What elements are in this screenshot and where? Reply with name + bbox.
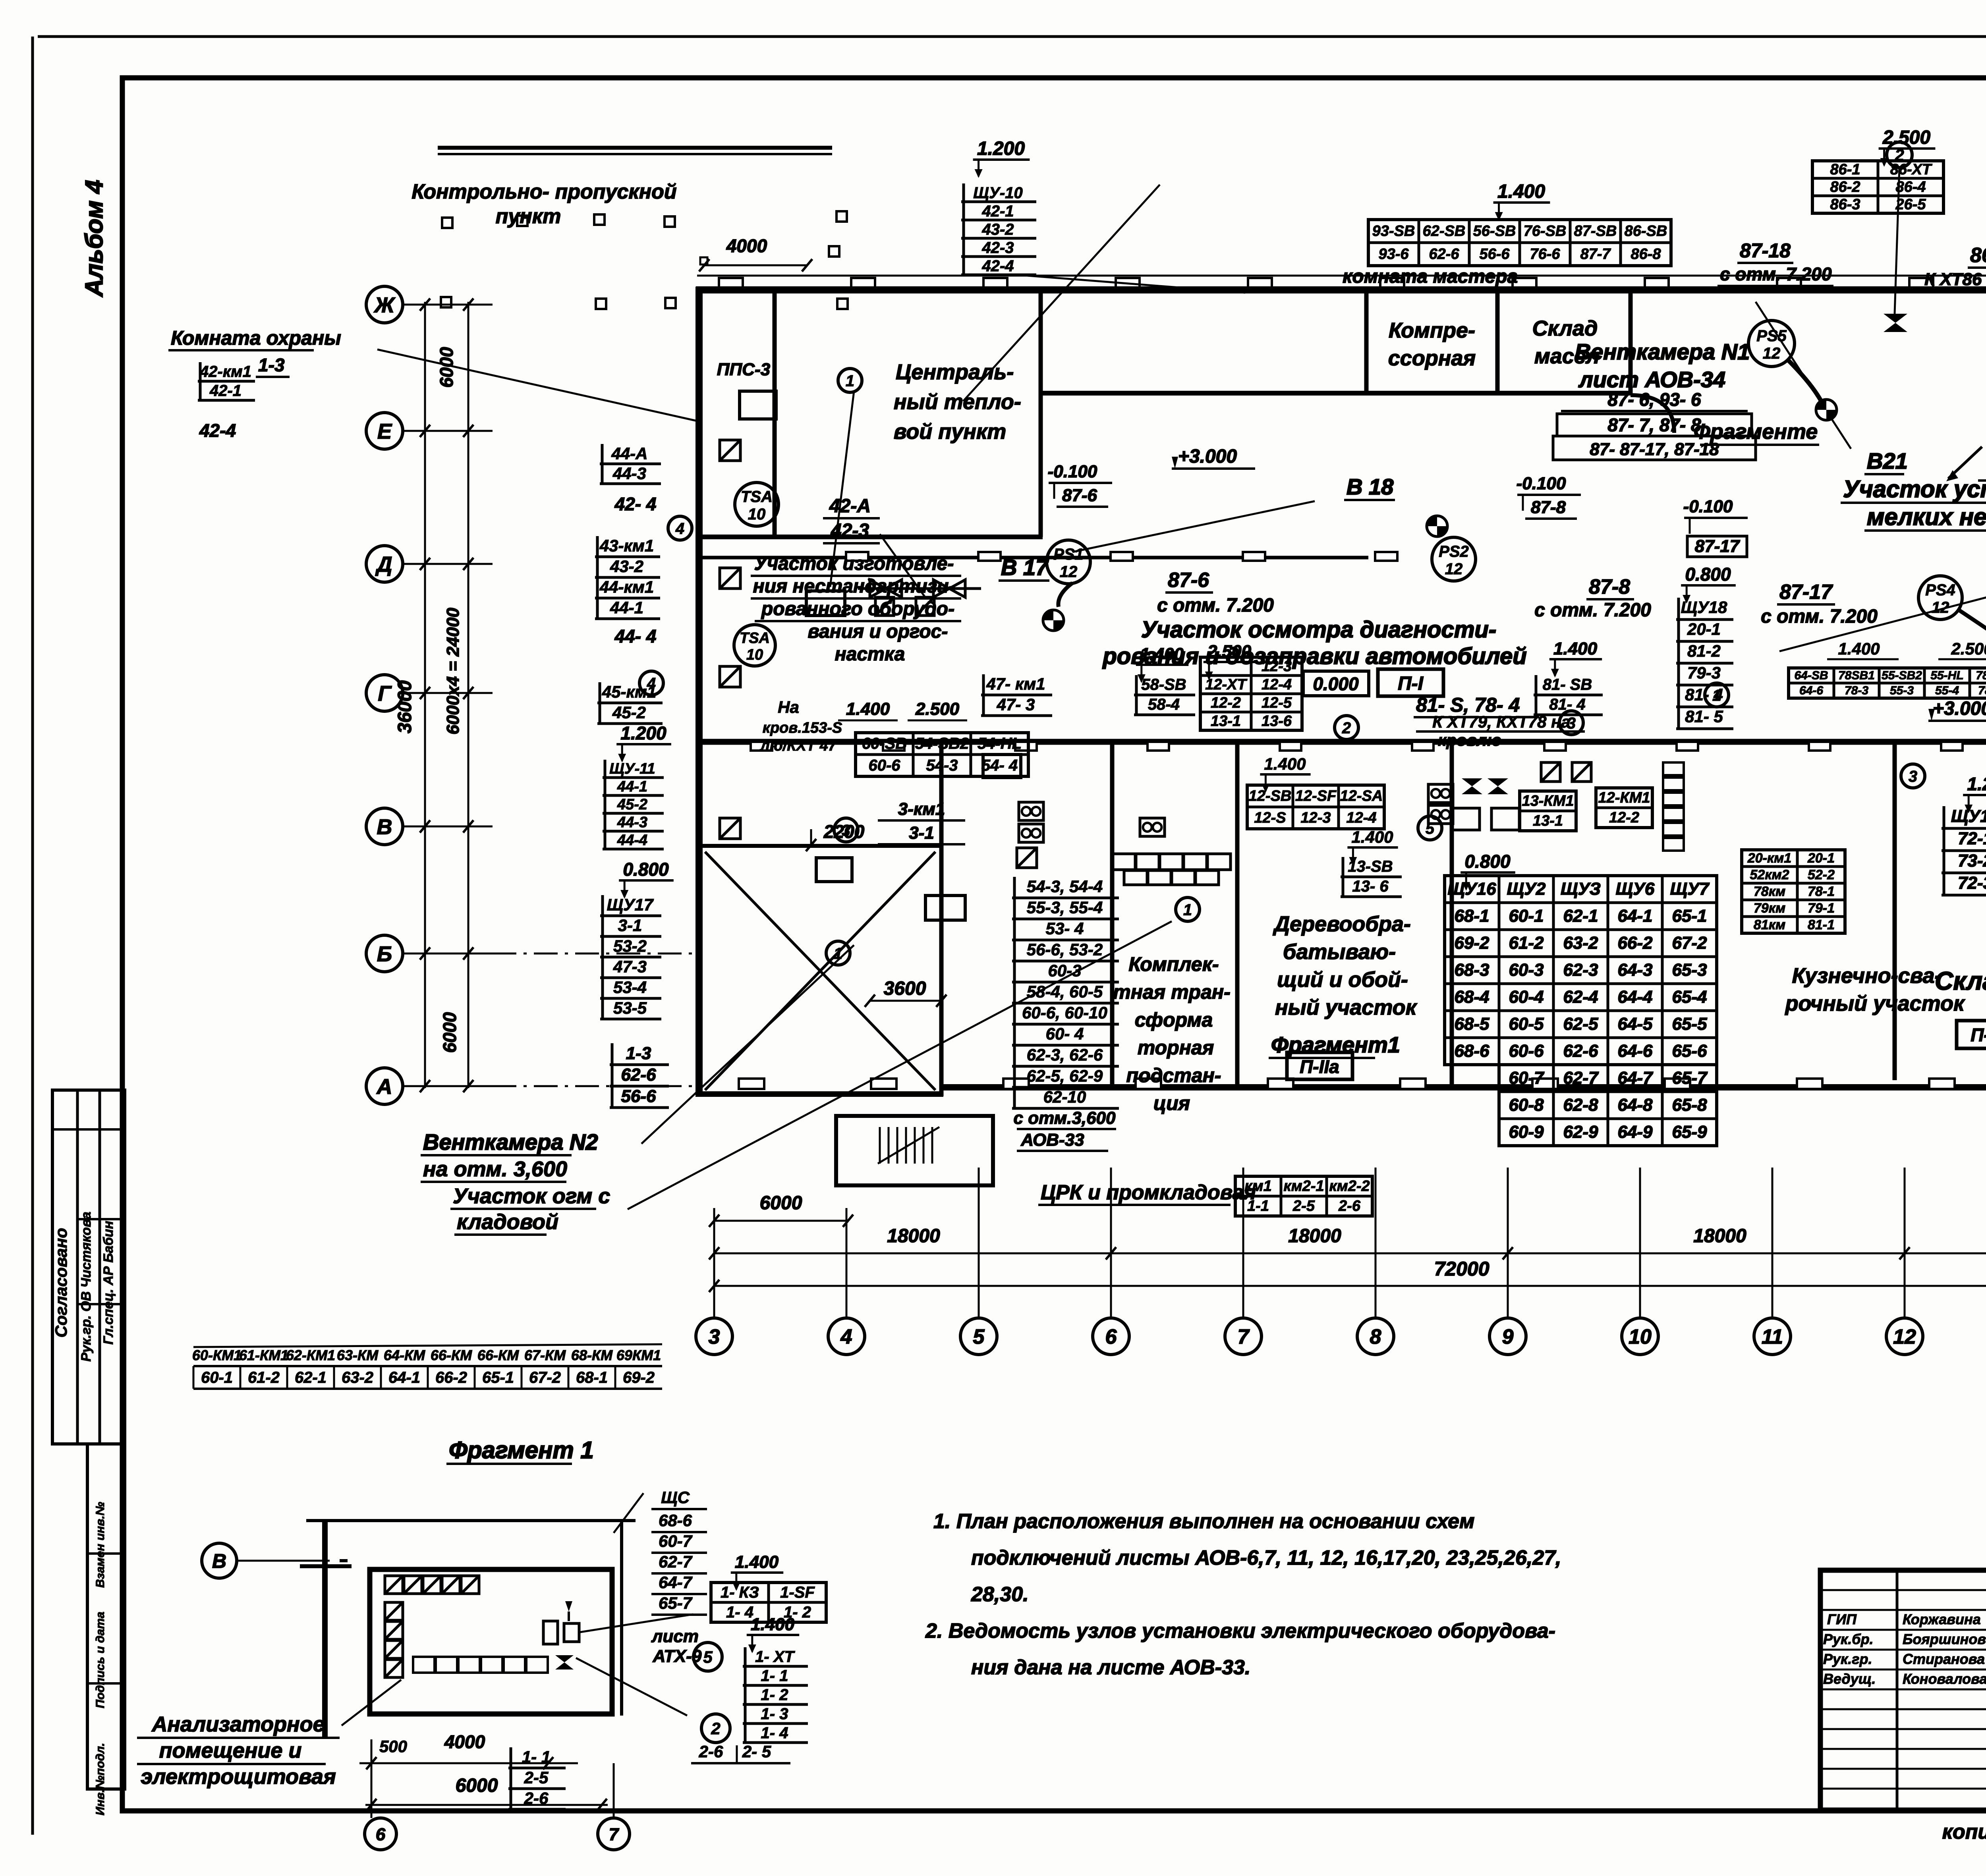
svg-text:72000: 72000 <box>1434 1258 1489 1280</box>
svg-text:-0.100: -0.100 <box>1048 462 1097 481</box>
svg-text:62-7: 62-7 <box>659 1552 693 1571</box>
svg-text:60- 4: 60- 4 <box>1046 1024 1084 1043</box>
svg-text:87-7: 87-7 <box>1580 246 1611 262</box>
svg-text:батываю-: батываю- <box>1283 940 1396 964</box>
svg-text:5: 5 <box>1426 820 1435 837</box>
svg-text:44-3: 44-3 <box>612 464 646 483</box>
svg-text:11: 11 <box>1762 1326 1783 1349</box>
svg-text:В21: В21 <box>1867 448 1908 473</box>
svg-text:12-2: 12-2 <box>1609 809 1639 826</box>
svg-text:62-1: 62-1 <box>295 1369 326 1386</box>
svg-text:Участок устранения: Участок устранения <box>1843 476 1986 502</box>
svg-text:1: 1 <box>1183 901 1192 919</box>
svg-text:20-1: 20-1 <box>1807 851 1835 866</box>
svg-text:ЩУ17: ЩУ17 <box>607 895 654 914</box>
svg-text:6: 6 <box>376 1825 386 1844</box>
svg-text:60-5: 60-5 <box>1509 1014 1544 1034</box>
svg-text:12: 12 <box>1060 563 1078 581</box>
svg-text:60-КМ1: 60-КМ1 <box>192 1347 241 1363</box>
svg-text:Коновалова: Коновалова <box>1903 1671 1986 1687</box>
svg-text:6000: 6000 <box>760 1193 802 1214</box>
svg-text:43-2: 43-2 <box>610 557 643 575</box>
svg-text:53-4: 53-4 <box>613 978 647 996</box>
svg-text:54- 4: 54- 4 <box>981 757 1018 774</box>
svg-text:81-2: 81-2 <box>1687 641 1721 660</box>
svg-text:5: 5 <box>703 1648 713 1666</box>
svg-text:3-1: 3-1 <box>909 823 934 843</box>
svg-text:47- 3: 47- 3 <box>997 695 1035 714</box>
svg-text:69КМ1: 69КМ1 <box>616 1347 661 1363</box>
svg-text:кров.153-S: кров.153-S <box>763 720 842 736</box>
svg-text:сформа: сформа <box>1135 1009 1213 1031</box>
svg-text:60-6: 60-6 <box>868 757 900 774</box>
svg-text:1- 4: 1- 4 <box>726 1604 753 1621</box>
svg-text:87-17: 87-17 <box>1779 581 1833 604</box>
svg-text:2.500: 2.500 <box>915 699 960 719</box>
svg-text:65-3: 65-3 <box>1672 960 1707 980</box>
svg-text:3-км1: 3-км1 <box>898 799 945 819</box>
svg-text:лист АОВ-34: лист АОВ-34 <box>1578 367 1725 392</box>
svg-text:86-8: 86-8 <box>1631 246 1661 262</box>
svg-text:1.400: 1.400 <box>846 699 890 719</box>
svg-text:42-4: 42-4 <box>981 257 1014 275</box>
svg-text:К ХТ86 на кровлю: К ХТ86 на кровлю <box>1924 270 1986 289</box>
svg-text:81км: 81км <box>1754 917 1785 932</box>
svg-text:62-7: 62-7 <box>1563 1068 1599 1088</box>
svg-text:4: 4 <box>675 520 684 537</box>
svg-text:78- S: 78- S <box>1978 684 1986 697</box>
svg-text:86-1: 86-1 <box>1830 161 1860 178</box>
svg-text:Венткамера N1: Венткамера N1 <box>1575 339 1750 364</box>
svg-text:54-SВ2: 54-SВ2 <box>915 735 969 752</box>
svg-text:3: 3 <box>842 822 850 839</box>
svg-text:60-6: 60-6 <box>1509 1041 1544 1061</box>
svg-text:53-5: 53-5 <box>613 998 647 1017</box>
svg-text:вания и оргос-: вания и оргос- <box>808 621 948 642</box>
svg-text:мелких неисправностей: мелких неисправностей <box>1867 504 1986 530</box>
svg-text:68-1: 68-1 <box>576 1369 608 1386</box>
svg-text:60-SВ: 60-SВ <box>862 735 907 752</box>
svg-text:55-4: 55-4 <box>1935 684 1959 697</box>
svg-text:60-4: 60-4 <box>1509 987 1544 1007</box>
svg-text:65-9: 65-9 <box>1672 1122 1707 1142</box>
svg-text:68-1: 68-1 <box>1454 906 1489 926</box>
svg-text:64-3: 64-3 <box>1617 960 1652 980</box>
svg-text:Коржавина: Коржавина <box>1903 1611 1981 1627</box>
svg-text:1- 2: 1- 2 <box>761 1686 788 1704</box>
svg-text:1- 1: 1- 1 <box>761 1667 788 1685</box>
svg-text:81-1: 81-1 <box>1808 917 1835 932</box>
svg-text:кровлю: кровлю <box>1438 731 1501 749</box>
svg-text:2: 2 <box>1342 719 1351 737</box>
svg-text:подключений листы АОВ-6,7, 11,: подключений листы АОВ-6,7, 11, 12, 16,17… <box>971 1546 1561 1569</box>
svg-text:56-6, 53-2: 56-6, 53-2 <box>1027 940 1103 959</box>
svg-text:Рук.гр. ОВ Чистякова: Рук.гр. ОВ Чистякова <box>79 1212 94 1362</box>
svg-text:настка: настка <box>835 644 905 665</box>
svg-text:64-8: 64-8 <box>1617 1095 1653 1115</box>
svg-text:63-2: 63-2 <box>1563 933 1598 953</box>
svg-text:44-3: 44-3 <box>617 814 647 831</box>
svg-text:53- 4: 53- 4 <box>1046 919 1084 938</box>
svg-text:68-5: 68-5 <box>1454 1014 1489 1034</box>
svg-text:рованного оборудо-: рованного оборудо- <box>761 598 954 620</box>
svg-text:щий и обой-: щий и обой- <box>1277 968 1408 992</box>
svg-text:68-4: 68-4 <box>1454 987 1489 1007</box>
svg-text:1- ХТ: 1- ХТ <box>755 1648 795 1666</box>
svg-text:TSA: TSA <box>740 630 770 647</box>
svg-text:Склад шин: Склад шин <box>1935 967 1986 995</box>
svg-text:2- 5: 2- 5 <box>742 1742 771 1761</box>
svg-text:78SВ1: 78SВ1 <box>1838 669 1875 682</box>
svg-text:64-6: 64-6 <box>1617 1041 1653 1061</box>
svg-text:1-1: 1-1 <box>1247 1198 1269 1214</box>
svg-text:1.200: 1.200 <box>977 138 1025 159</box>
svg-text:78-3: 78-3 <box>1845 684 1868 697</box>
svg-text:12-2: 12-2 <box>1211 695 1241 711</box>
svg-text:лист: лист <box>651 1627 699 1646</box>
svg-text:65-1: 65-1 <box>482 1369 514 1386</box>
svg-text:1- КЗ: 1- КЗ <box>721 1584 759 1601</box>
svg-text:Взамен инв.№: Взамен инв.№ <box>94 1502 107 1588</box>
svg-text:12-4: 12-4 <box>1346 810 1376 826</box>
svg-text:67-2: 67-2 <box>1672 933 1707 953</box>
svg-text:2.500: 2.500 <box>1951 639 1986 658</box>
svg-text:ЦРК и промкладовая: ЦРК и промкладовая <box>1041 1181 1256 1204</box>
svg-text:2-6: 2-6 <box>524 1789 549 1807</box>
svg-text:1.400: 1.400 <box>751 1615 795 1634</box>
svg-text:68-6: 68-6 <box>659 1511 692 1530</box>
svg-text:1.400: 1.400 <box>1553 639 1598 658</box>
svg-text:62-10: 62-10 <box>1043 1087 1086 1106</box>
svg-text:ный участок: ный участок <box>1275 996 1418 1019</box>
svg-text:54-НL: 54-НL <box>978 735 1022 752</box>
svg-text:Анализаторное: Анализаторное <box>151 1712 325 1736</box>
svg-text:АОВ-33: АОВ-33 <box>1020 1130 1084 1150</box>
svg-text:72-3: 72-3 <box>1958 873 1986 893</box>
svg-text:12: 12 <box>1893 1326 1916 1349</box>
svg-text:Согласовано: Согласовано <box>52 1228 70 1338</box>
svg-text:45-2: 45-2 <box>617 796 647 813</box>
svg-text:В: В <box>212 1550 226 1572</box>
svg-text:64-4: 64-4 <box>1617 987 1652 1007</box>
svg-text:Б: Б <box>377 942 392 966</box>
svg-text:87-6: 87-6 <box>1168 569 1209 592</box>
svg-text:65-7: 65-7 <box>659 1594 693 1612</box>
svg-text:67-КМ: 67-КМ <box>524 1347 566 1363</box>
svg-text:62-4: 62-4 <box>1563 987 1598 1007</box>
svg-text:1.400: 1.400 <box>1351 828 1393 846</box>
svg-text:комната мастера: комната мастера <box>1343 266 1518 287</box>
svg-text:1.200: 1.200 <box>620 723 667 743</box>
svg-text:64-6: 64-6 <box>1799 684 1823 697</box>
svg-text:68-3: 68-3 <box>1454 960 1489 980</box>
svg-text:ГИП: ГИП <box>1827 1611 1857 1627</box>
svg-text:П-IIа: П-IIа <box>1300 1056 1339 1077</box>
svg-text:66-КМ: 66-КМ <box>431 1347 472 1363</box>
svg-text:60-3: 60-3 <box>1509 960 1544 980</box>
svg-text:42- 4: 42- 4 <box>614 494 657 514</box>
svg-text:18000: 18000 <box>1288 1226 1341 1247</box>
svg-text:3-1: 3-1 <box>618 916 642 934</box>
svg-text:Кузнечно-сва-: Кузнечно-сва- <box>1792 964 1942 988</box>
svg-text:5: 5 <box>973 1326 985 1349</box>
svg-text:12-КМ1: 12-КМ1 <box>1598 789 1650 806</box>
svg-text:87-8: 87-8 <box>1531 498 1566 517</box>
svg-text:Комната охраны: Комната охраны <box>171 327 341 349</box>
svg-text:км2-1: км2-1 <box>1283 1178 1324 1195</box>
svg-text:ЩУ-10: ЩУ-10 <box>973 184 1022 202</box>
svg-text:62-SB: 62-SB <box>1423 223 1466 239</box>
svg-text:1.400: 1.400 <box>1497 181 1545 202</box>
svg-text:1. План расположения выполнен: 1. План расположения выполнен на основан… <box>933 1510 1474 1533</box>
svg-text:12-5: 12-5 <box>1262 695 1292 711</box>
svg-text:93-6: 93-6 <box>1378 246 1409 262</box>
svg-text:В: В <box>377 815 392 839</box>
svg-text:с отм. 7.200: с отм. 7.200 <box>1720 264 1832 284</box>
svg-text:Контрольно- пропускной: Контрольно- пропускной <box>411 180 676 203</box>
svg-text:Е: Е <box>377 419 392 443</box>
svg-text:3600: 3600 <box>884 978 926 999</box>
svg-text:ЩУЗ: ЩУЗ <box>1561 879 1601 899</box>
svg-text:62-5, 62-9: 62-5, 62-9 <box>1027 1066 1103 1085</box>
svg-text:67-2: 67-2 <box>529 1369 561 1386</box>
svg-text:12-SВ: 12-SВ <box>1249 788 1292 805</box>
svg-text:Инв.№подл.: Инв.№подл. <box>94 1743 107 1816</box>
svg-text:12-SF: 12-SF <box>1295 788 1337 805</box>
svg-text:86-4: 86-4 <box>1895 179 1926 195</box>
svg-text:4000: 4000 <box>726 235 767 256</box>
svg-text:подстан-: подстан- <box>1126 1064 1221 1087</box>
svg-text:78-НL: 78-НL <box>1976 669 1986 682</box>
svg-text:Ж: Ж <box>373 293 396 317</box>
svg-text:7: 7 <box>609 1825 620 1844</box>
svg-text:58-SВ: 58-SВ <box>1141 676 1186 693</box>
svg-text:+3.000: +3.000 <box>1933 698 1986 719</box>
svg-text:76-SB: 76-SB <box>1524 223 1567 239</box>
svg-text:Фрагмент 1: Фрагмент 1 <box>449 1437 594 1463</box>
svg-text:73-2: 73-2 <box>1958 851 1986 870</box>
svg-text:12: 12 <box>1445 560 1463 578</box>
svg-text:43-2: 43-2 <box>981 221 1014 238</box>
svg-text:Комплек-: Комплек- <box>1128 953 1219 975</box>
svg-text:6000: 6000 <box>439 1012 460 1053</box>
svg-text:электрощитовая: электрощитовая <box>141 1765 336 1789</box>
svg-text:с отм. 7.200: с отм. 7.200 <box>1157 595 1274 616</box>
svg-text:42-км1: 42-км1 <box>199 363 251 380</box>
svg-text:2: 2 <box>711 1719 720 1738</box>
svg-text:52км2: 52км2 <box>1750 867 1789 882</box>
svg-text:Участок осмотра диагности-: Участок осмотра диагности- <box>1141 617 1496 643</box>
svg-text:60-7: 60-7 <box>1509 1068 1545 1088</box>
svg-text:1- 1: 1- 1 <box>522 1747 551 1766</box>
svg-text:79-3: 79-3 <box>1687 663 1721 682</box>
svg-text:ЩУ7: ЩУ7 <box>1670 879 1710 899</box>
svg-text:79-1: 79-1 <box>1808 901 1835 916</box>
svg-text:13-1: 13-1 <box>1211 713 1241 730</box>
svg-text:0.800: 0.800 <box>1464 851 1511 872</box>
svg-text:Альбом 4: Альбом 4 <box>81 180 108 297</box>
svg-text:79км: 79км <box>1754 901 1785 916</box>
svg-text:рочный участок: рочный участок <box>1785 992 1965 1015</box>
svg-text:PS1: PS1 <box>1053 546 1084 563</box>
svg-text:72-1: 72-1 <box>1958 829 1986 848</box>
svg-text:4: 4 <box>647 675 656 692</box>
svg-text:87- 7, 87- 8: 87- 7, 87- 8 <box>1607 415 1701 435</box>
svg-text:43-км1: 43-км1 <box>599 536 654 555</box>
svg-text:Стиранова: Стиранова <box>1903 1651 1985 1667</box>
svg-text:68-КМ: 68-КМ <box>571 1347 613 1363</box>
svg-text:64-SВ: 64-SВ <box>1794 669 1828 682</box>
svg-text:км1: км1 <box>1244 1178 1272 1195</box>
svg-text:60-7: 60-7 <box>659 1532 693 1550</box>
svg-text:ЩУ16: ЩУ16 <box>1447 879 1496 899</box>
svg-text:55-НL: 55-НL <box>1930 669 1963 682</box>
svg-text:0.000: 0.000 <box>1313 674 1359 694</box>
svg-text:Венткамера N2: Венткамера N2 <box>423 1129 598 1154</box>
svg-text:2: 2 <box>1894 146 1904 164</box>
svg-text:44-1: 44-1 <box>610 598 643 617</box>
svg-text:42-3: 42-3 <box>831 520 869 541</box>
svg-text:12-3: 12-3 <box>1262 658 1292 675</box>
svg-text:61-2: 61-2 <box>1509 933 1544 953</box>
svg-text:Компре-: Компре- <box>1389 318 1475 342</box>
svg-text:Склад: Склад <box>1532 317 1598 340</box>
svg-text:кладовой: кладовой <box>457 1210 558 1234</box>
svg-text:69-2: 69-2 <box>1454 933 1489 953</box>
svg-text:1: 1 <box>846 372 854 390</box>
svg-text:65-4: 65-4 <box>1672 987 1707 1007</box>
svg-text:с отм. 7.200: с отм. 7.200 <box>1534 600 1651 621</box>
svg-text:9: 9 <box>1502 1326 1514 1349</box>
svg-text:0.800: 0.800 <box>1685 564 1731 585</box>
svg-text:1: 1 <box>1712 687 1721 704</box>
svg-text:В 17: В 17 <box>1001 555 1049 580</box>
svg-text:65-1: 65-1 <box>1672 906 1707 926</box>
svg-text:44-км1: 44-км1 <box>599 577 654 596</box>
svg-text:44- 4: 44- 4 <box>614 626 657 647</box>
svg-text:76-6: 76-6 <box>1530 246 1560 262</box>
svg-text:1.200: 1.200 <box>1967 774 1986 794</box>
svg-text:60-1: 60-1 <box>201 1369 233 1386</box>
svg-text:81- 5: 81- 5 <box>1685 707 1723 726</box>
svg-text:Подпись и дата: Подпись и дата <box>94 1612 107 1708</box>
svg-text:56-6: 56-6 <box>621 1087 656 1106</box>
svg-text:с отм. 7.200: с отм. 7.200 <box>1761 606 1878 627</box>
svg-text:4000: 4000 <box>444 1731 485 1752</box>
svg-text:47- км1: 47- км1 <box>986 674 1045 693</box>
svg-text:93-SB: 93-SB <box>1372 223 1415 239</box>
svg-text:копировал Лида: копировал Лида <box>1942 1820 1986 1843</box>
svg-text:2-6: 2-6 <box>1338 1198 1361 1214</box>
svg-text:87-6: 87-6 <box>1062 486 1097 505</box>
svg-text:тная тран-: тная тран- <box>1113 981 1230 1003</box>
svg-text:В 18: В 18 <box>1347 474 1394 499</box>
svg-text:Деревообра-: Деревообра- <box>1273 912 1411 936</box>
svg-text:66-2: 66-2 <box>1617 933 1653 953</box>
svg-text:65-6: 65-6 <box>1672 1041 1707 1061</box>
svg-text:ния дана на листе АОВ-33.: ния дана на листе АОВ-33. <box>971 1656 1250 1679</box>
svg-text:Фрагменте: Фрагменте <box>1694 420 1818 444</box>
svg-text:62-6: 62-6 <box>1563 1041 1598 1061</box>
svg-text:П-I: П-I <box>1398 673 1424 694</box>
svg-text:56-6: 56-6 <box>1479 246 1510 262</box>
svg-text:Г: Г <box>378 681 392 705</box>
svg-text:61-КМ1: 61-КМ1 <box>239 1347 288 1363</box>
svg-text:86-3: 86-3 <box>1830 196 1860 213</box>
svg-text:44-А: 44-А <box>611 444 647 463</box>
svg-text:55-SВ2: 55-SВ2 <box>1882 669 1922 682</box>
svg-text:62-5: 62-5 <box>1563 1014 1598 1034</box>
svg-text:2-5: 2-5 <box>524 1768 549 1787</box>
svg-text:58-4: 58-4 <box>1148 696 1180 713</box>
svg-text:86-2: 86-2 <box>1830 179 1860 195</box>
svg-text:12: 12 <box>1763 345 1781 362</box>
svg-text:66-2: 66-2 <box>435 1369 467 1386</box>
svg-text:78км: 78км <box>1754 884 1785 899</box>
svg-text:Участок огм с: Участок огм с <box>453 1184 610 1208</box>
svg-text:18000: 18000 <box>1693 1226 1746 1247</box>
svg-text:60-9: 60-9 <box>1509 1122 1544 1142</box>
svg-text:Участок изготовле-: Участок изготовле- <box>754 553 954 574</box>
svg-text:42-А: 42-А <box>829 496 871 517</box>
svg-text:64-7: 64-7 <box>1617 1068 1654 1088</box>
svg-text:13-КМ1: 13-КМ1 <box>1522 793 1574 809</box>
svg-text:ция: ция <box>1153 1092 1190 1114</box>
svg-text:ЩУ2: ЩУ2 <box>1507 879 1546 899</box>
svg-text:13- 6: 13- 6 <box>1352 878 1389 895</box>
svg-text:Бояршинов: Бояршинов <box>1903 1631 1986 1647</box>
svg-text:87-18: 87-18 <box>1740 239 1791 262</box>
svg-text:лю/КХТ 47: лю/КХТ 47 <box>759 737 837 754</box>
svg-text:69-2: 69-2 <box>623 1369 655 1386</box>
svg-text:64-9: 64-9 <box>1617 1122 1653 1142</box>
svg-text:1.400: 1.400 <box>1838 639 1880 658</box>
svg-text:45-2: 45-2 <box>612 703 646 722</box>
svg-text:3: 3 <box>1909 768 1917 785</box>
svg-text:12-4: 12-4 <box>1262 676 1292 693</box>
svg-text:-0.100: -0.100 <box>1517 474 1566 493</box>
svg-text:55-3: 55-3 <box>1890 684 1914 697</box>
svg-text:64-КМ: 64-КМ <box>384 1347 425 1363</box>
svg-text:12-S: 12-S <box>1254 810 1286 826</box>
svg-text:62-6: 62-6 <box>621 1065 656 1085</box>
svg-text:20-1: 20-1 <box>1687 620 1721 638</box>
svg-text:64-1: 64-1 <box>388 1369 420 1386</box>
svg-text:10: 10 <box>746 647 763 663</box>
svg-text:13-SВ: 13-SВ <box>1348 858 1393 875</box>
svg-text:3: 3 <box>709 1326 720 1349</box>
svg-text:500: 500 <box>379 1737 407 1756</box>
svg-text:20-км1: 20-км1 <box>1747 851 1791 866</box>
svg-text:54-3: 54-3 <box>926 757 958 774</box>
svg-text:2-6: 2-6 <box>699 1742 723 1761</box>
svg-text:1-SF: 1-SF <box>780 1584 815 1601</box>
svg-text:7: 7 <box>1238 1326 1250 1349</box>
svg-text:68-6: 68-6 <box>1454 1041 1489 1061</box>
svg-text:км2-2: км2-2 <box>1329 1178 1370 1195</box>
svg-text:10: 10 <box>748 506 766 523</box>
svg-text:42-1: 42-1 <box>209 382 241 400</box>
svg-text:2. Ведомость узлов установки э: 2. Ведомость узлов установки электрическ… <box>925 1619 1555 1642</box>
svg-text:Ведущ.: Ведущ. <box>1823 1671 1876 1687</box>
svg-text:ссорная: ссорная <box>1388 346 1476 370</box>
svg-text:ЩУ18: ЩУ18 <box>1681 598 1727 616</box>
svg-text:44-1: 44-1 <box>617 778 647 795</box>
svg-text:78-1: 78-1 <box>1808 884 1835 899</box>
svg-text:12-SА: 12-SА <box>1340 788 1383 805</box>
svg-text:1-3: 1-3 <box>258 355 285 375</box>
svg-text:6000х4 = 24000: 6000х4 = 24000 <box>443 608 463 735</box>
